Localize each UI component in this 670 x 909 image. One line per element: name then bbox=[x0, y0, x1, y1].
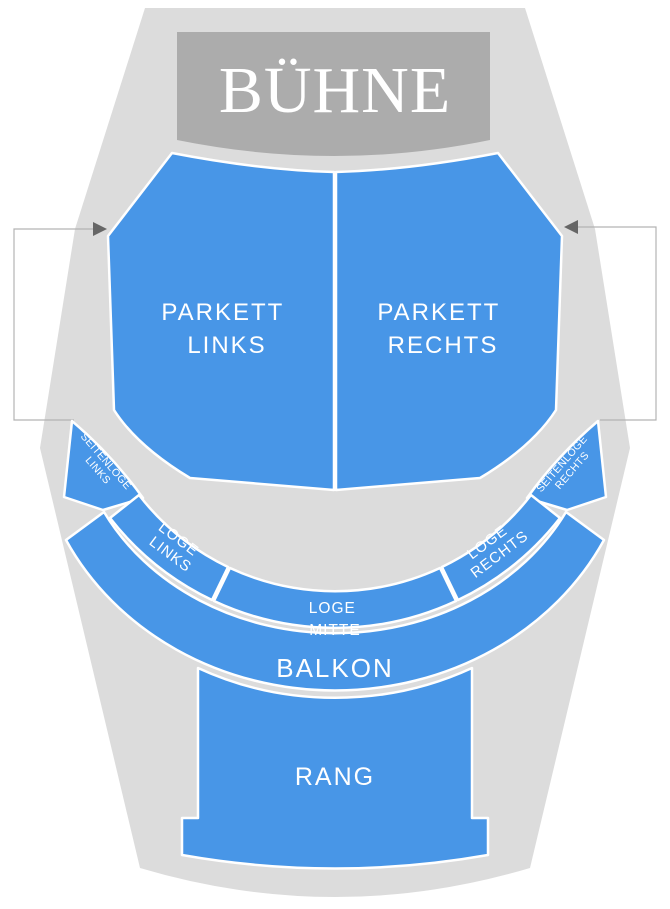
stage: BÜHNE bbox=[177, 32, 490, 156]
section-shape-rang[interactable] bbox=[182, 668, 488, 869]
seating-chart-canvas: BÜHNE PARKETT LINKS PARKETT RECHTS BALKO… bbox=[0, 0, 670, 909]
section-shape-parkett-links[interactable] bbox=[108, 153, 334, 490]
seating-chart: BÜHNE PARKETT LINKS PARKETT RECHTS BALKO… bbox=[0, 0, 670, 909]
section-parkett-links: PARKETT LINKS bbox=[108, 153, 334, 490]
stage-label: BÜHNE bbox=[219, 54, 451, 127]
section-rang: RANG bbox=[182, 668, 488, 869]
section-parkett-rechts: PARKETT RECHTS bbox=[336, 153, 562, 490]
section-shape-parkett-rechts[interactable] bbox=[336, 153, 562, 490]
